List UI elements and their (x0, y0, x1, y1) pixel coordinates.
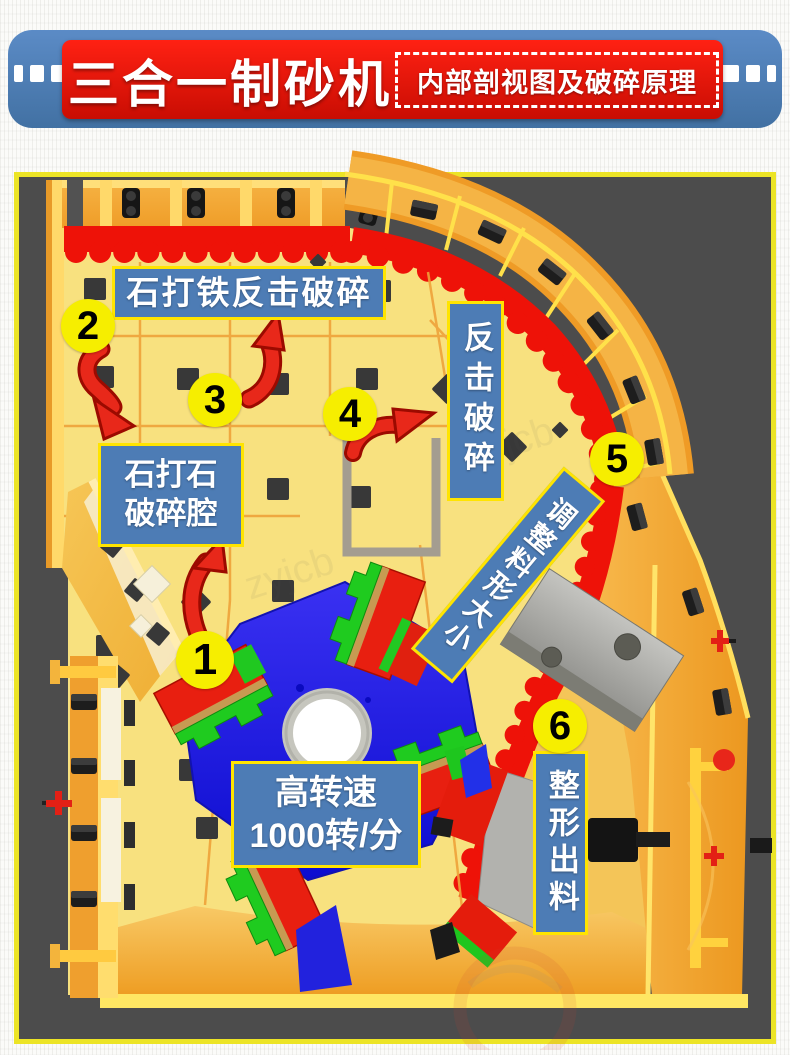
label-stone-iron-impact: 石打铁反击破碎 (112, 266, 386, 320)
banner-dash (30, 65, 44, 82)
marker-5: 5 (590, 432, 644, 486)
label-speed-line2: 1000转/分 (249, 815, 402, 858)
label-impact-crush: 反击破碎 (447, 301, 504, 501)
title-banner: 三合一制砂机 内部剖视图及破碎原理 (8, 30, 782, 128)
label-speed-line1: 高转速 (275, 772, 377, 815)
marker-4: 4 (323, 387, 377, 441)
label-shaping-discharge: 整形出料 (533, 751, 588, 935)
marker-3: 3 (188, 373, 242, 427)
marker-2: 2 (61, 299, 115, 353)
page-title: 三合一制砂机 (62, 40, 398, 119)
label-stone-stone-line2: 破碎腔 (125, 495, 218, 534)
banner-dash (746, 65, 760, 82)
banner-red-box: 三合一制砂机 内部剖视图及破碎原理 (62, 40, 723, 119)
banner-dash (14, 65, 23, 82)
page-subtitle: 内部剖视图及破碎原理 (395, 52, 719, 108)
marker-6: 6 (533, 699, 587, 753)
banner-dash (767, 65, 776, 82)
label-stone-stone-line1: 石打石 (125, 456, 218, 495)
label-rotor-speed: 高转速 1000转/分 (231, 761, 421, 868)
label-stone-stone-chamber: 石打石 破碎腔 (98, 443, 244, 547)
marker-1: 1 (176, 631, 234, 689)
